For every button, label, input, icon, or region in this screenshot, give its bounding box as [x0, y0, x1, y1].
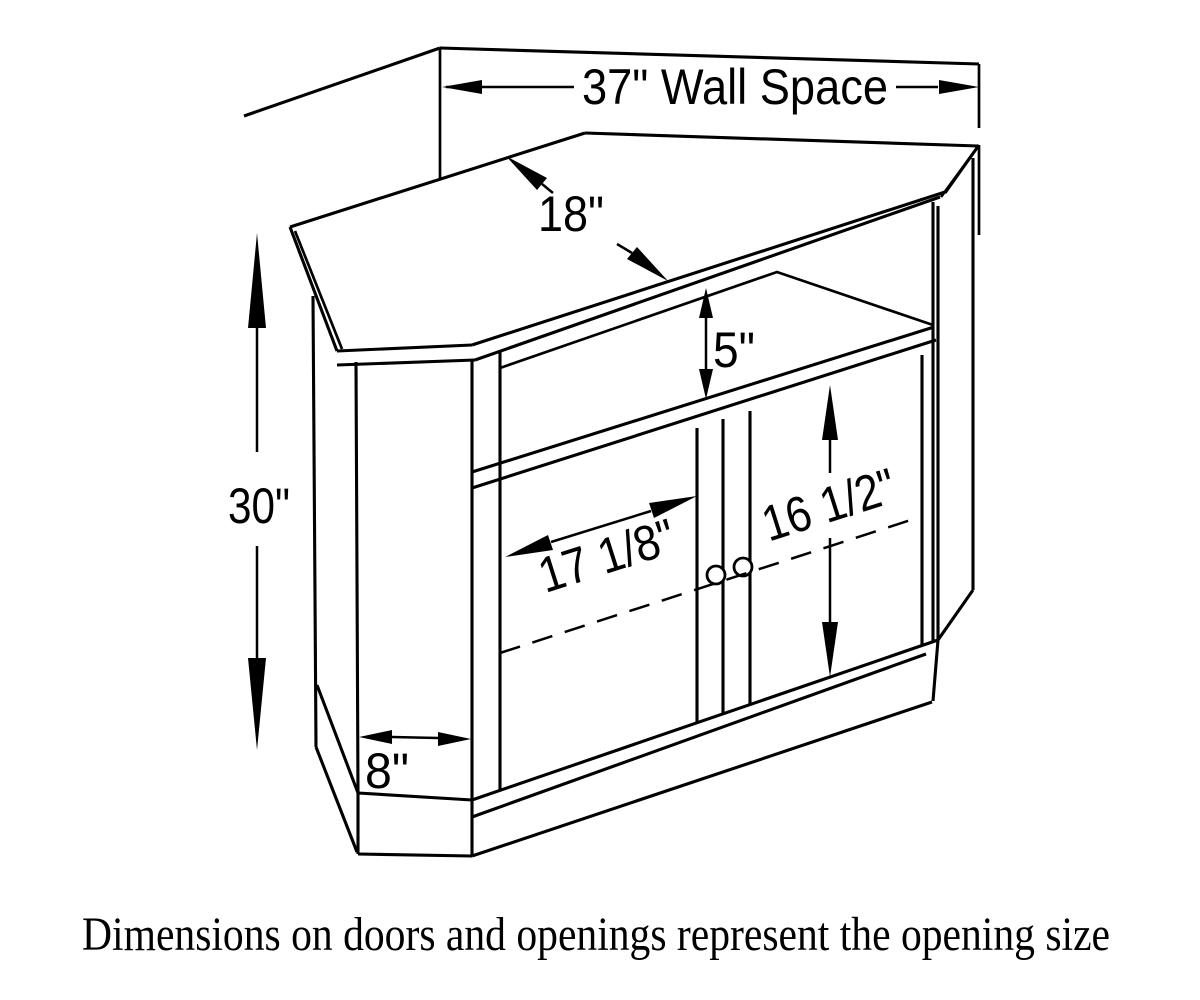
- dim-overall-height-label: 30": [228, 478, 290, 534]
- dim-top-depth-label: 18": [538, 186, 604, 242]
- arrowhead-down-icon: [248, 658, 266, 750]
- arrowhead-up-icon: [822, 385, 838, 440]
- dimension-top-depth: 18": [506, 156, 668, 281]
- dimension-overall-height: 30": [228, 233, 290, 750]
- dim-opening-height-label: 5": [713, 322, 755, 378]
- dimension-door-opening-height: 16 1/2": [755, 385, 903, 677]
- arrowhead-up-icon: [248, 233, 266, 328]
- arrowhead-downright-icon: [627, 247, 668, 281]
- cabinet-right-side-and-base: [472, 145, 979, 856]
- dimension-end-width: 8": [359, 730, 471, 799]
- dim-end-width-label: 8": [365, 743, 409, 799]
- dim-door-opening-width-label: 17 1/8": [532, 508, 682, 604]
- arrowhead-down-icon: [699, 369, 713, 399]
- arrowhead-right-icon: [939, 80, 979, 94]
- left-door-knob: [707, 566, 725, 584]
- cabinet-top: [290, 133, 979, 365]
- caption-text: Dimensions on doors and openings represe…: [82, 908, 1110, 961]
- arrowhead-upleft-icon: [506, 156, 547, 190]
- dimension-wall-space: 37" Wall Space: [442, 59, 979, 115]
- corner-cabinet-diagram: 37" Wall Space 18" 5": [0, 0, 1200, 1000]
- arrowhead-up-icon: [699, 288, 713, 318]
- technical-drawing-page: 37" Wall Space 18" 5": [0, 0, 1200, 1000]
- arrowhead-left-icon: [359, 730, 392, 744]
- dimension-door-opening-width: 17 1/8": [505, 496, 697, 604]
- dimension-opening-height: 5": [699, 288, 755, 399]
- arrowhead-down-icon: [822, 622, 838, 677]
- dim-wall-space-label: 37" Wall Space: [582, 59, 888, 115]
- arrowhead-right-icon: [438, 732, 471, 746]
- arrowhead-left-icon: [442, 80, 482, 94]
